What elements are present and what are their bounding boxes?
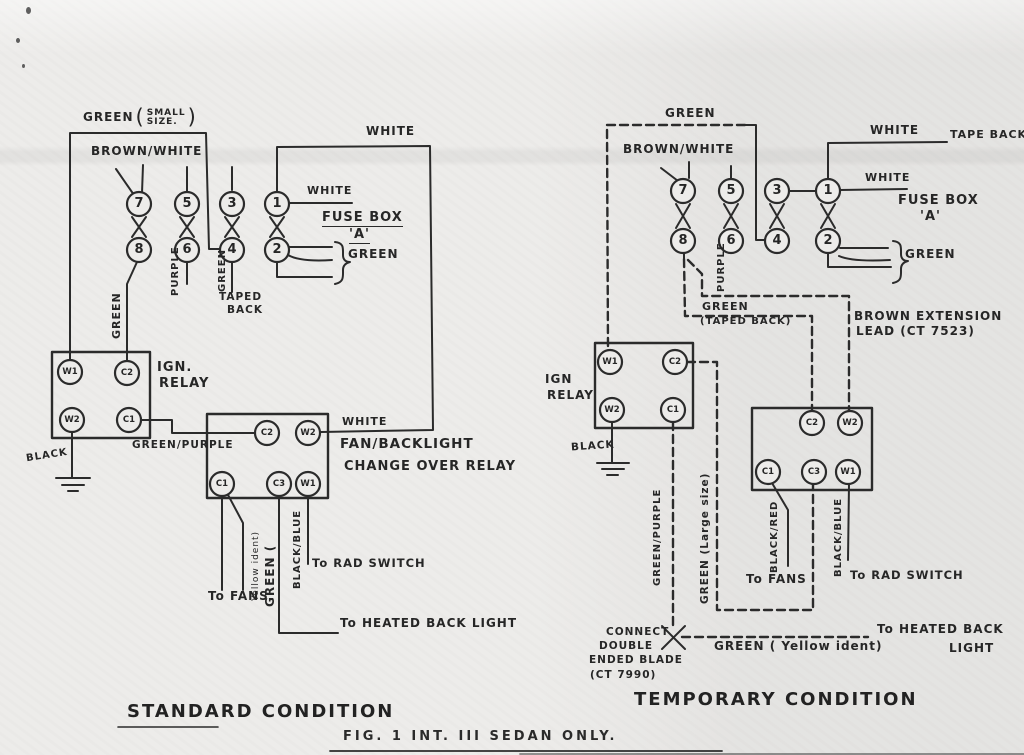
label-tape-back-tmp: TAPE BACK: [950, 129, 1024, 141]
terminal-c1-ign-std: C1: [116, 415, 142, 425]
label-fusebox-std: FUSE BOX: [322, 211, 403, 227]
label-taped-std: TAPED: [219, 292, 262, 304]
label-white-top-std: WHITE: [366, 125, 415, 138]
label-black-blue-vert-tmp: BLACK/BLUE: [833, 498, 844, 577]
label-light-tmp: LIGHT: [949, 642, 994, 655]
tmp-terminal-circles: [598, 350, 862, 484]
figure-caption: FIG. 1 INT. III SEDAN ONLY.: [343, 729, 617, 744]
label-green-top-tmp: GREEN: [665, 107, 716, 120]
label-to-rad-switch-std: To RAD SWITCH: [312, 557, 426, 570]
label-ct7990-tmp: (CT 7990): [590, 670, 656, 682]
fuse-5-tmp: 5: [719, 183, 743, 198]
terminal-c3-chg-tmp: C3: [801, 467, 827, 477]
label-ended-blade-tmp: ENDED BLADE: [589, 655, 683, 667]
label-white-w2-std: WHITE: [342, 416, 387, 428]
label-white-tape-tmp: WHITE: [870, 124, 919, 137]
label-black-blue-vert-std: BLACK/BLUE: [292, 510, 303, 589]
fuse-2-std: 2: [265, 242, 289, 257]
label-brown-extension-tmp: BROWN EXTENSION: [854, 310, 1002, 323]
label-ign-relay-std: RELAY: [159, 377, 209, 391]
paren-close: ): [188, 107, 197, 128]
fuse-4-std: 4: [220, 242, 244, 257]
terminal-c3-chg-std: C3: [266, 479, 292, 489]
scan-speck: [26, 7, 31, 14]
terminal-c2-chg-tmp: C2: [799, 418, 825, 428]
label-ign-relay-tmp: RELAY: [547, 389, 594, 402]
fuse-3-std: 3: [220, 196, 244, 211]
fuse-8-std: 8: [127, 242, 151, 257]
terminal-c1-chg-tmp: C1: [755, 467, 781, 477]
fuse-6-std: 6: [175, 242, 199, 257]
terminal-w2-chg-tmp: W2: [837, 418, 863, 428]
title-temporary-condition: TEMPORARY CONDITION: [634, 689, 918, 710]
fuse-2-tmp: 2: [816, 233, 840, 248]
terminal-c2-chg-std: C2: [254, 428, 280, 438]
label-to-heated-std: To HEATED BACK LIGHT: [340, 617, 517, 630]
terminal-c1-ign-tmp: C1: [660, 405, 686, 415]
label-green-bracket-std: GREEN: [348, 248, 399, 261]
caption-rules: [330, 751, 1024, 754]
label-double-tmp: DOUBLE: [599, 641, 653, 653]
label-green-fuse8-vert-std: GREEN: [110, 292, 123, 339]
terminal-w1-chg-std: W1: [295, 479, 321, 489]
label-brown-white-std: BROWN/WHITE: [91, 145, 202, 158]
label-green-yellow-ident-tmp: GREEN ( Yellow ident): [714, 640, 882, 653]
paren-open: (: [136, 107, 145, 128]
label-green-taped-tmp: GREEN: [702, 301, 749, 313]
scan-speck: [16, 38, 20, 43]
label-taped-back-tmp: (TAPED BACK): [700, 316, 791, 327]
label-green-feed: GREEN: [83, 111, 134, 124]
label-brown-white-tmp: BROWN/WHITE: [623, 143, 734, 156]
label-fusebox-a-tmp: 'A': [920, 210, 941, 224]
label-to-fans-tmp: To FANS: [746, 573, 807, 586]
label-green-large-vert-tmp: GREEN (Large size): [699, 473, 711, 604]
label-fan-backlight: FAN/BACKLIGHT: [340, 437, 474, 452]
terminal-w1-ign-std: W1: [57, 367, 83, 377]
label-green-yellow-vert-std: GREEN (: [263, 545, 277, 607]
terminal-w1-chg-tmp: W1: [835, 467, 861, 477]
label-white-fuse1-std: WHITE: [307, 185, 352, 197]
title-standard-condition: STANDARD CONDITION: [127, 701, 394, 722]
fuse-4-tmp: 4: [765, 233, 789, 248]
fuse-5-std: 5: [175, 196, 199, 211]
label-to-heated-back-tmp: To HEATED BACK: [877, 623, 1004, 636]
label-yellow-ident-vert-std: Yellow ident): [251, 531, 261, 601]
label-ign-tmp: IGN: [545, 373, 572, 386]
label-small-size: SMALL SIZE.: [147, 109, 186, 127]
scanned-wiring-diagram: GREEN ( SMALL SIZE. ) BROWN/WHITE WHITE …: [0, 0, 1024, 755]
label-purple-vert-tmp: PURPLE: [716, 242, 727, 292]
label-white-fuse1-tmp: WHITE: [865, 172, 910, 184]
terminal-c2-ign-tmp: C2: [662, 357, 688, 367]
tmp-relay-boxes: [595, 343, 872, 490]
label-fusebox-a-std: 'A': [349, 228, 370, 244]
terminal-w1-ign-tmp: W1: [597, 357, 623, 367]
fuse-8-tmp: 8: [671, 233, 695, 248]
label-green-small-size: GREEN ( SMALL SIZE. ): [83, 107, 197, 128]
label-back-std: BACK: [227, 305, 263, 317]
terminal-w2-ign-tmp: W2: [599, 405, 625, 415]
label-lead-ct7523-tmp: LEAD (CT 7523): [856, 325, 975, 338]
label-black-red-vert-tmp: BLACK/RED: [769, 501, 780, 573]
terminal-w2-ign-std: W2: [59, 415, 85, 425]
label-to-rad-switch-tmp: To RAD SWITCH: [850, 569, 964, 582]
fuse-6-tmp: 6: [719, 233, 743, 248]
fuse-1-tmp: 1: [816, 183, 840, 198]
label-green-purple-vert-tmp: GREEN/PURPLE: [652, 489, 663, 586]
terminal-w2-chg-std: W2: [295, 428, 321, 438]
fuse-7-tmp: 7: [671, 183, 695, 198]
label-changeover-relay: CHANGE OVER RELAY: [344, 460, 516, 474]
label-connect-tmp: CONNECT: [606, 627, 669, 639]
terminal-c2-ign-std: C2: [114, 368, 140, 378]
label-fusebox-tmp: FUSE BOX: [898, 194, 979, 208]
fuse-1-std: 1: [265, 196, 289, 211]
fuse-3-tmp: 3: [765, 183, 789, 198]
label-green-purple-std: GREEN/PURPLE: [132, 440, 234, 452]
terminal-c1-chg-std: C1: [209, 479, 235, 489]
scan-speck: [22, 64, 25, 68]
label-green-bracket-tmp: GREEN: [905, 248, 956, 261]
label-ign-std: IGN.: [157, 361, 192, 375]
fuse-7-std: 7: [127, 196, 151, 211]
